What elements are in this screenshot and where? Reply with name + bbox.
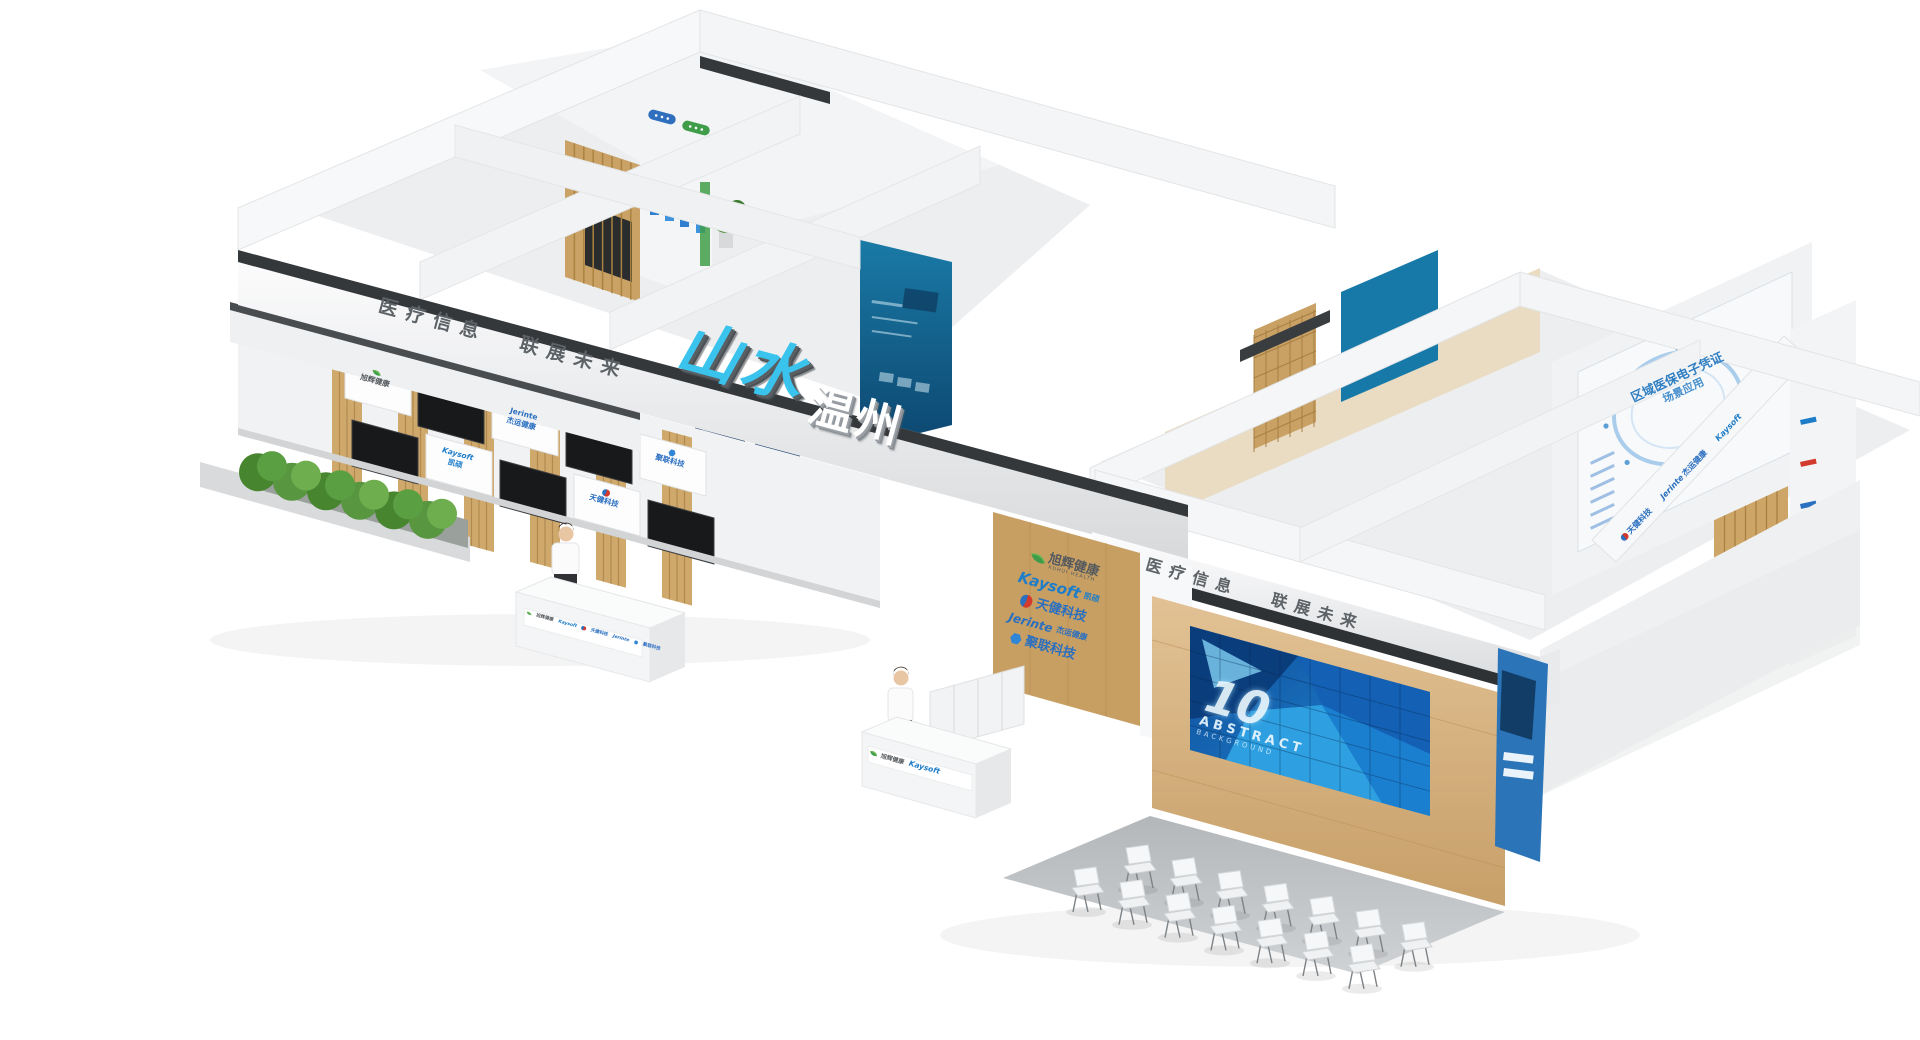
leaf-icon — [870, 750, 877, 757]
globe-icon — [1019, 594, 1034, 609]
hexagon-icon — [1009, 632, 1023, 646]
leaf-icon — [1031, 551, 1045, 565]
leaf-icon — [527, 611, 532, 616]
globe-icon — [581, 626, 586, 631]
exhibition-booth-render: 医疗信息联展未来 山水 温州 医疗信息联展未来 旭辉健康 Jerinte 杰运健… — [0, 0, 1920, 1040]
hexagon-icon — [633, 640, 638, 645]
